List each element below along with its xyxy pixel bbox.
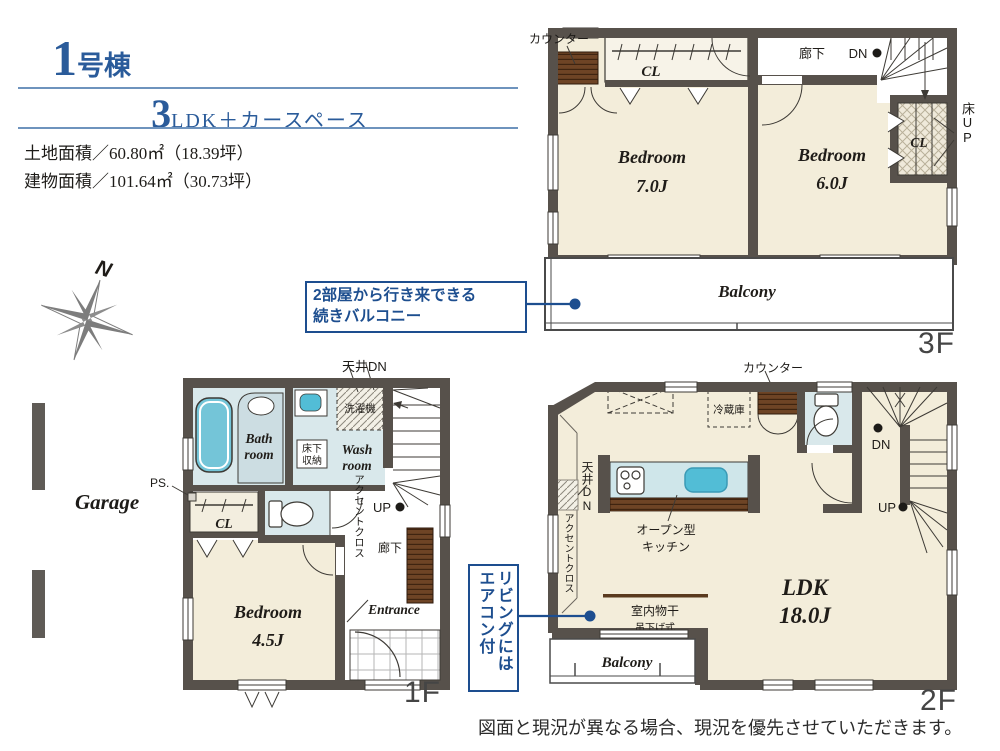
floor2-tag: 2F xyxy=(920,684,957,718)
closet-1f-label: CL xyxy=(215,516,232,531)
closet-3f: CL xyxy=(605,34,748,82)
garage-wall-upper xyxy=(32,403,45,490)
header-rule-bottom xyxy=(18,127,518,129)
kitchen-label-2: キッチン xyxy=(642,540,690,554)
bathtub xyxy=(196,398,232,472)
bedroom-1f-size: 4.5J xyxy=(251,630,285,650)
counter-label-2f: カウンター xyxy=(743,359,803,376)
floor3-plan: CL xyxy=(520,20,1000,370)
floorplan-sheet: 1号棟 3LDK＋カースペース 土地面積／60.80㎡（18.39坪） 建物面積… xyxy=(0,0,1000,751)
aircon-callout-dot xyxy=(585,611,596,622)
bedroom2-name: Bedroom xyxy=(797,145,866,165)
entrance-tiles xyxy=(350,630,440,680)
down-label-2f: DN xyxy=(872,437,891,452)
layout-count: 3 xyxy=(151,91,171,136)
closet-3f-label: CL xyxy=(641,64,660,80)
stove xyxy=(617,467,644,494)
ps-label: PS. xyxy=(150,476,169,490)
balcony-3f: Balcony xyxy=(545,258,953,330)
underfloor-storage: 床下 収納 xyxy=(297,440,327,468)
building-number: 1 xyxy=(52,30,77,86)
down-label-3f: DN xyxy=(849,46,868,61)
counter-3f xyxy=(553,52,598,84)
bedroom-1f-name: Bedroom xyxy=(233,602,302,622)
floor-up-label: 床UP xyxy=(958,102,977,145)
hallway-label-1f: 廊下 xyxy=(378,540,402,555)
pipe-shaft xyxy=(188,493,196,501)
balcony-callout: 2部屋から行き来できる 続きバルコニー xyxy=(305,281,527,333)
accent-cloth-label-2f: アクセントクロス xyxy=(560,513,575,593)
floor1-plan: Bath room 洗濯機 床下 収納 Wash room xyxy=(150,350,460,715)
up-label-2f: UP xyxy=(878,500,896,515)
wash-basin xyxy=(295,390,327,416)
bath-label-1: Bath xyxy=(244,431,272,446)
building-suffix: 号棟 xyxy=(77,51,131,81)
aircon-callout-col1: リビングには xyxy=(493,570,511,686)
wash-label-2: room xyxy=(342,458,371,473)
garage-wall-lower xyxy=(32,570,45,638)
floor-up-closet-3f: CL xyxy=(888,103,954,175)
compass-north-label: N xyxy=(93,256,115,283)
accent-cloth-label-1f: アクセントクロス xyxy=(352,474,367,558)
kitchen-sink xyxy=(685,468,727,492)
aircon-callout: リビングには エアコン付 xyxy=(468,564,519,692)
balcony-callout-line2: 続きバルコニー xyxy=(313,307,519,328)
balcony-2f-label: Balcony xyxy=(601,655,653,671)
up-label-1f: UP xyxy=(373,500,391,515)
compass-rose: N xyxy=(25,245,155,370)
toilet-2f xyxy=(814,394,838,436)
counter-label-3f: カウンター xyxy=(529,30,589,47)
wash-label-1: Wash xyxy=(342,442,373,457)
washing-machine-label: 洗濯機 xyxy=(344,402,376,415)
shoe-cabinet xyxy=(407,528,433,603)
layout-title: 3LDK＋カースペース xyxy=(120,90,400,137)
balcony-callout-line1: 2部屋から行き来できる xyxy=(313,286,519,307)
drying-label-1: 室内物干 xyxy=(631,603,679,618)
toilet-1f xyxy=(269,501,313,527)
underfloor-label-1: 床下 xyxy=(302,442,322,455)
closet-1f: CL xyxy=(190,492,258,532)
underfloor-label-2: 収納 xyxy=(302,454,322,467)
ldk-size: 18.0J xyxy=(779,603,832,628)
compass-star: N xyxy=(28,245,152,370)
stair-down-dot-3f xyxy=(873,49,882,58)
bath-label-2: room xyxy=(244,447,273,462)
fridge: 冷蔵庫 xyxy=(708,390,750,427)
drying-bar xyxy=(603,594,708,598)
bedroom1-size: 7.0J xyxy=(636,176,669,196)
stair-up-dot-1f xyxy=(396,503,405,512)
stair-up-dot-2f xyxy=(899,503,908,512)
ceiling-down-label-2f: 天井DN xyxy=(579,461,596,513)
aircon-callout-col2: エアコン付 xyxy=(475,570,493,686)
closet2-3f-label: CL xyxy=(910,135,927,150)
floor3-tag: 3F xyxy=(918,327,955,361)
balcony-3f-label: Balcony xyxy=(717,282,776,301)
building-area: 建物面積／101.64㎡（30.73坪） xyxy=(24,167,262,192)
land-area: 土地面積／60.80㎡（18.39坪） xyxy=(24,139,254,164)
kitchen-label-1: オープン型 xyxy=(636,523,695,537)
floor2-plan: 冷蔵庫 オープン型 キッチン xyxy=(455,355,1000,720)
page-title: 1号棟 xyxy=(52,33,131,83)
bedroom1-name: Bedroom xyxy=(617,147,686,167)
stair-down-dot-2f xyxy=(874,424,883,433)
floor1-tag: 1F xyxy=(404,676,441,710)
washing-machine: 洗濯機 xyxy=(337,387,383,430)
ldk-name: LDK xyxy=(781,575,830,600)
balcony-callout-dot xyxy=(570,299,581,310)
garage-label: Garage xyxy=(75,490,139,515)
ceiling-down-label-1f: 天井DN xyxy=(342,356,387,375)
kitchen-island xyxy=(598,455,760,513)
fridge-label: 冷蔵庫 xyxy=(713,403,745,416)
bedroom2-size: 6.0J xyxy=(816,173,849,193)
entrance-label: Entrance xyxy=(367,602,420,617)
hallway-label-3f: 廊下 xyxy=(799,46,825,61)
header-rule-top xyxy=(18,87,518,89)
